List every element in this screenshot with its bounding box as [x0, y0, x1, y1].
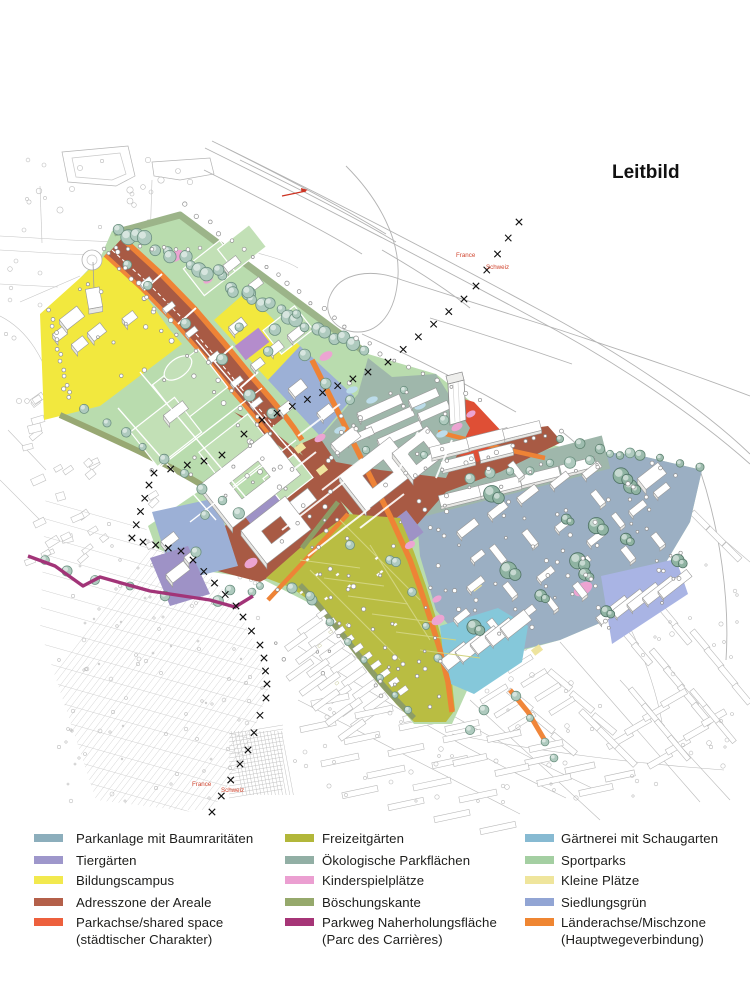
- svg-text:France: France: [192, 781, 212, 788]
- svg-text:Schweiz: Schweiz: [221, 787, 244, 794]
- svg-text:France: France: [456, 252, 476, 259]
- svg-text:Schweiz: Schweiz: [486, 264, 509, 271]
